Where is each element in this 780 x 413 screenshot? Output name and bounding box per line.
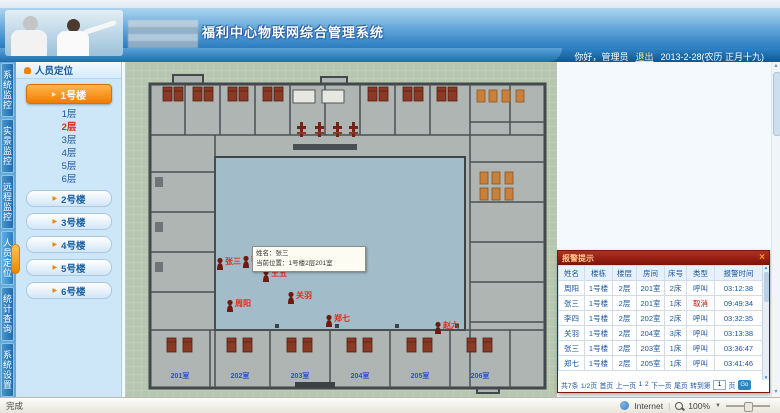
prev-page-link[interactable]: 上一页 [616,380,636,390]
arrow-right-icon: ▶ [53,241,58,248]
first-page-link[interactable]: 首页 [600,380,614,390]
cell: 201室 [637,281,665,296]
cell: 1床 [665,341,687,356]
cell: 205室 [637,356,665,371]
col-header: 床号 [665,266,687,281]
col-header: 楼层 [613,266,637,281]
building-button-label: 6号楼 [61,284,85,298]
col-header: 姓名 [559,266,585,281]
room-label: 201室 [171,371,190,380]
goto-page-input[interactable] [713,380,726,390]
floor-item-1[interactable]: 1层 [16,108,122,121]
zoom-level[interactable]: 100% [688,401,710,411]
cell: 203室 [637,341,665,356]
svg-text:周阳: 周阳 [235,299,251,308]
scroll-down-icon[interactable]: ▼ [763,375,769,380]
cell: 03:36:47 [715,341,763,356]
building-button-4[interactable]: ▶ 4号楼 [26,236,112,253]
building-button-label: 1号楼 [61,87,87,102]
cell: 204室 [637,326,665,341]
alarm-panel: 报警提示 × 姓名 楼栋 楼层 房间 床号 类型 报警时间 周阳1号楼2层201… [557,250,770,393]
cell: 呼叫 [687,281,715,296]
arrow-right-icon: ▶ [53,287,58,294]
arrow-right-icon: ▶ [53,218,58,225]
next-page-link[interactable]: 下一页 [651,380,671,390]
building-button-label: 4号楼 [61,238,85,252]
cell: 09:49:34 [715,296,763,311]
arrow-right-icon: ▶ [53,264,58,271]
table-row[interactable]: 郑七1号楼2层205室1床呼叫03:41:46 [559,356,763,371]
col-header: 报警时间 [715,266,763,281]
room-label: 204室 [351,371,370,380]
photo-figure [23,16,38,31]
panel-scrollbar[interactable]: ▲ ▼ [762,265,769,380]
scroll-down-icon[interactable]: ▼ [772,388,780,397]
cell: 202室 [637,311,665,326]
svg-text:张三: 张三 [225,257,241,266]
col-header: 楼栋 [585,266,613,281]
cell: 1号楼 [585,296,613,311]
cell: 呼叫 [687,311,715,326]
alarm-panel-title: 报警提示 [562,253,759,264]
tab-system-settings[interactable]: 系统设置 [1,343,14,397]
floor-item-3[interactable]: 3层 [16,134,122,147]
cell: 关羽 [559,326,585,341]
internet-zone-icon [620,401,629,410]
building-button-label: 2号楼 [61,192,85,206]
floor-item-5[interactable]: 5层 [16,160,122,173]
greeting-label: 你好， [574,52,601,62]
zoom-magnifier-icon [675,402,683,410]
tab-remote-monitor[interactable]: 远程监控 [1,175,14,229]
browser-scrollbar[interactable]: ▲ ▼ [771,62,780,397]
zone-label: Internet [634,401,663,411]
building-button-1[interactable]: ▶ 1号楼 [26,84,112,104]
scrollbar-thumb[interactable] [764,272,769,302]
chevron-down-icon[interactable]: ▼ [715,403,721,409]
tooltip-name: 姓名：张三 [256,249,362,259]
cell: 1床 [665,296,687,311]
building-button-label: 5号楼 [61,261,85,275]
cell: 03:12:38 [715,281,763,296]
go-button[interactable]: Go [738,380,751,390]
cell: 呼叫 [687,341,715,356]
person-tooltip: 姓名：张三 当前位置：1号楼2层201室 [252,246,366,272]
building-button-label: 3号楼 [61,215,85,229]
alarm-table-header: 姓名 楼栋 楼层 房间 床号 类型 报警时间 [559,266,763,281]
cell: 呼叫 [687,326,715,341]
courtyard [215,157,465,330]
cell: 03:32:35 [715,311,763,326]
cell: 取消 [687,296,715,311]
photo-figure [11,30,47,56]
alarm-panel-titlebar: 报警提示 × [558,251,769,265]
cell: 张三 [559,296,585,311]
page-info: 1/2页 [581,380,597,390]
cell: 03:41:46 [715,356,763,371]
cell: 郑七 [559,356,585,371]
browser-top-strip [0,0,780,8]
svg-text:关羽: 关羽 [296,290,312,300]
table-row[interactable]: 张三1号楼2层201室1床取消09:49:34 [559,296,763,311]
room-label: 205室 [411,371,430,380]
scroll-up-icon[interactable]: ▲ [763,265,769,270]
module-tab-strip: 系统监控 实景监控 远程监控 人员定位 统计查询 系统设置 [0,62,16,397]
sidebar-header: 人员定位 [16,62,121,79]
building-button-5[interactable]: ▶ 5号楼 [26,259,112,276]
cell: 2层 [613,296,637,311]
table-row[interactable]: 关羽1号楼2层204室3床呼叫03:13:38 [559,326,763,341]
cell: 1号楼 [585,326,613,341]
floor-item-4[interactable]: 4层 [16,147,122,160]
status-right-cluster: Internet | 100% ▼ [620,401,770,411]
censored-logo-block [128,20,198,48]
goto-label: 转到第 [690,380,710,390]
building-button-2[interactable]: ▶ 2号楼 [26,190,112,207]
active-tab-indicator [11,244,20,274]
cell: 1号楼 [585,281,613,296]
room-label: 202室 [231,371,250,380]
arrow-right-icon: ▶ [53,195,58,202]
cell: 呼叫 [687,356,715,371]
table-row[interactable]: 张三1号楼2层203室1床呼叫03:36:47 [559,341,763,356]
building-button-3[interactable]: ▶ 3号楼 [26,213,112,230]
browser-status-bar: 完成 Internet | 100% ▼ [0,397,780,413]
page-number-2[interactable]: 2 [645,381,649,388]
photo-figure [83,20,117,35]
cell: 李四 [559,311,585,326]
cell: 1号楼 [585,341,613,356]
cell: 1号楼 [585,356,613,371]
floor-plan-svg: 201室 202室 203室 204室 205室 206室 张三 李四 王五 周… [125,62,557,397]
cell: 2层 [613,326,637,341]
scrollbar-thumb[interactable] [773,72,780,136]
separator: | [668,401,670,411]
cell: 1号楼 [585,311,613,326]
cell: 1床 [665,356,687,371]
col-header: 房间 [637,266,665,281]
close-icon[interactable]: × [759,253,765,263]
cell: 03:13:38 [715,326,763,341]
cell: 2床 [665,311,687,326]
header-photo [5,10,123,56]
cell: 张三 [559,341,585,356]
cell: 2层 [613,356,637,371]
sidebar-title: 人员定位 [35,63,73,77]
scroll-up-icon[interactable]: ▲ [772,62,780,71]
cell: 201室 [637,296,665,311]
tab-scene-monitor[interactable]: 实景监控 [1,119,14,173]
cell: 2层 [613,281,637,296]
cell: 2层 [613,341,637,356]
pagination-bar: 共7条 1/2页 首页 上一页 1 2 下一页 尾页 转到第 页 Go [558,378,763,391]
page-number-1[interactable]: 1 [639,381,643,388]
cell: 周阳 [559,281,585,296]
cell: 2层 [613,311,637,326]
floor-item-6[interactable]: 6层 [16,173,122,186]
username: 管理员 [601,52,628,62]
floor-item-2[interactable]: 2层 [16,121,122,134]
room-label: 203室 [291,371,310,380]
room-label: 206室 [471,371,490,380]
tab-statistics-query[interactable]: 统计查询 [1,287,14,341]
tab-system-monitor[interactable]: 系统监控 [1,63,14,117]
cell: 3床 [665,326,687,341]
total-count: 共7条 [561,380,578,390]
zoom-slider-knob[interactable] [744,402,753,412]
cell: 2床 [665,281,687,296]
floor-plan-map: 201室 202室 203室 204室 205室 206室 张三 李四 王五 周… [125,62,557,397]
zoom-slider[interactable] [726,405,770,407]
person-icon [24,67,31,74]
svg-text:郑七: 郑七 [334,313,350,323]
alarm-table: 姓名 楼栋 楼层 房间 床号 类型 报警时间 周阳1号楼2层201室2床呼叫03… [558,265,763,371]
last-page-link[interactable]: 尾页 [674,380,688,390]
photo-figure [57,31,89,56]
arrow-right-icon: ▶ [52,91,57,98]
sidebar-panel: 人员定位 ▶ 1号楼 1层 2层 3层 4层 5层 6层 ▶ 2号楼 ▶ 3号楼… [16,62,122,397]
app-title: 福利中心物联网综合管理系统 [202,22,384,41]
app-header: 福利中心物联网综合管理系统 [0,8,780,48]
goto-unit: 页 [729,380,736,390]
col-header: 类型 [687,266,715,281]
table-row[interactable]: 李四1号楼2层202室2床呼叫03:32:35 [559,311,763,326]
building-button-6[interactable]: ▶ 6号楼 [26,282,112,299]
table-row[interactable]: 周阳1号楼2层201室2床呼叫03:12:38 [559,281,763,296]
status-text: 完成 [6,400,620,412]
svg-text:赵六: 赵六 [442,320,459,330]
tooltip-location: 当前位置：1号楼2层201室 [256,259,362,269]
